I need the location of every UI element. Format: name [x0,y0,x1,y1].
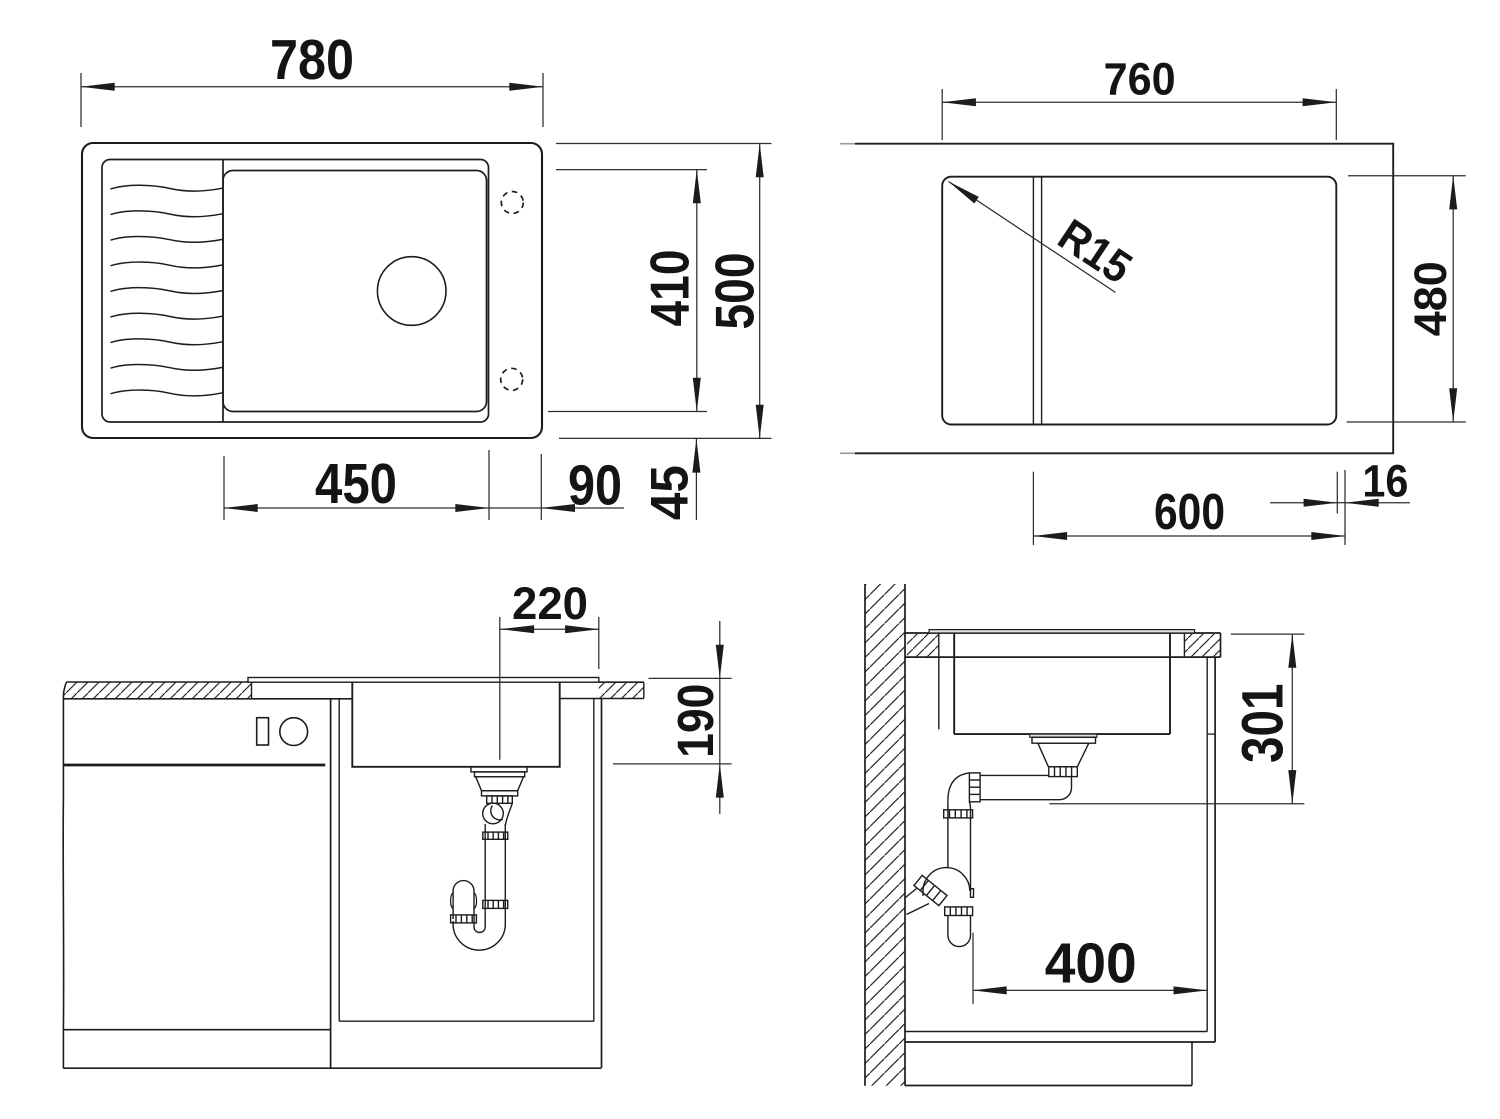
svg-text:480: 480 [1405,261,1456,336]
svg-text:500: 500 [703,253,765,330]
svg-text:16: 16 [1362,456,1408,507]
svg-text:301: 301 [1230,684,1295,764]
svg-text:400: 400 [1045,932,1137,996]
svg-text:410: 410 [639,250,701,327]
svg-text:190: 190 [667,684,724,758]
svg-text:220: 220 [512,578,588,629]
svg-text:600: 600 [1154,483,1225,540]
svg-text:45: 45 [640,465,699,520]
svg-text:450: 450 [315,452,397,516]
svg-text:760: 760 [1104,53,1176,104]
svg-text:780: 780 [270,28,354,92]
svg-text:90: 90 [568,454,622,518]
